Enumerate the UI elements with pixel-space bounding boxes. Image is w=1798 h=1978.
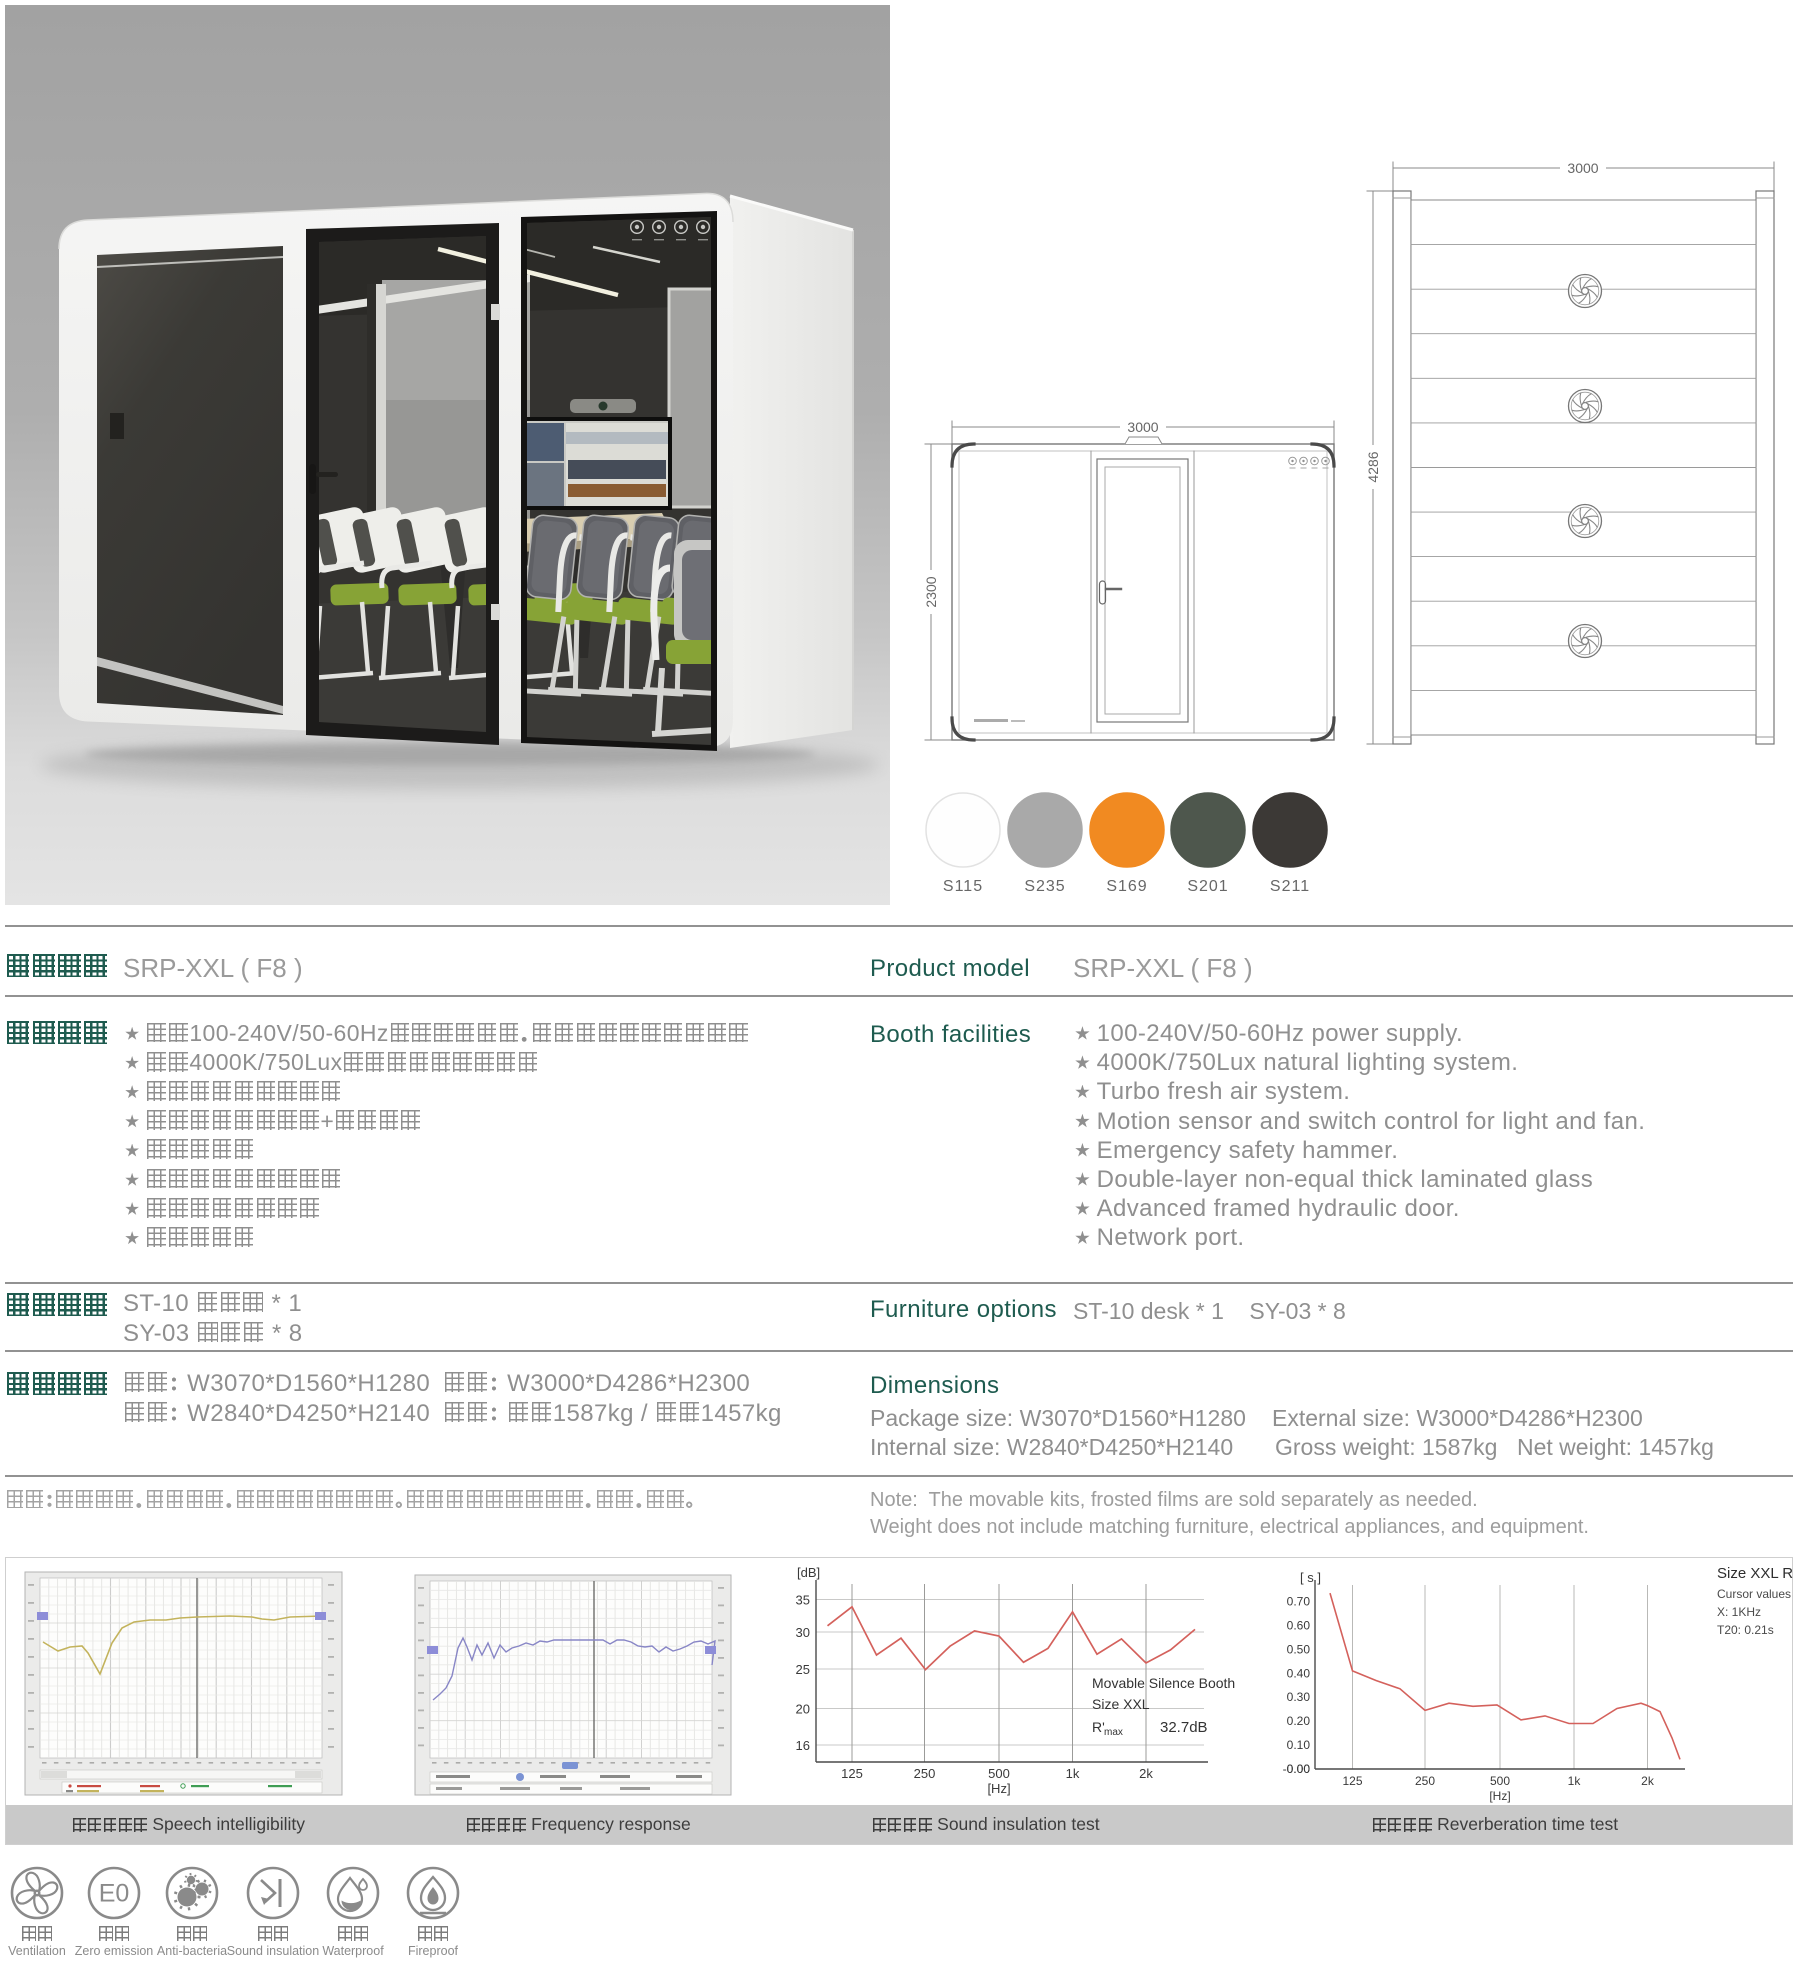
svg-text:125: 125 (1342, 1774, 1362, 1788)
svg-text:Size XXL RT: Size XXL RT (1717, 1565, 1793, 1582)
svg-text:Cursor values: Cursor values (1717, 1587, 1791, 1601)
svg-text:S115: S115 (943, 878, 983, 895)
svg-text:S211: S211 (1270, 878, 1310, 895)
svg-text:0.60: 0.60 (1287, 1618, 1311, 1632)
svg-text:32.7dB: 32.7dB (1160, 1719, 1208, 1736)
svg-text:250: 250 (1415, 1774, 1435, 1788)
svg-text:0.50: 0.50 (1287, 1642, 1311, 1656)
svg-text:R': R' (1092, 1719, 1105, 1735)
svg-text:30: 30 (796, 1625, 810, 1640)
svg-text:[dB]: [dB] (797, 1565, 820, 1580)
svg-text:16: 16 (796, 1738, 810, 1753)
svg-text:25: 25 (796, 1662, 810, 1677)
svg-text:0.00: 0.00 (1287, 1762, 1311, 1776)
svg-text:125: 125 (841, 1766, 863, 1781)
svg-text:250: 250 (914, 1766, 936, 1781)
svg-text:S235: S235 (1024, 878, 1065, 895)
svg-text:0.40: 0.40 (1287, 1666, 1311, 1680)
svg-text:[Hz]: [Hz] (1489, 1789, 1510, 1803)
svg-text:S201: S201 (1187, 878, 1228, 895)
svg-text:Size XXL: Size XXL (1092, 1696, 1150, 1712)
svg-text:35: 35 (796, 1593, 810, 1608)
svg-text:0.20: 0.20 (1287, 1714, 1311, 1728)
svg-text:E0: E0 (99, 1880, 130, 1908)
svg-text:0.70: 0.70 (1287, 1595, 1311, 1609)
svg-text:3000: 3000 (1127, 419, 1158, 435)
svg-text:3000: 3000 (1567, 160, 1598, 176)
svg-text:500: 500 (1490, 1774, 1510, 1788)
svg-text:0.30: 0.30 (1287, 1690, 1311, 1704)
svg-text:2k: 2k (1139, 1766, 1153, 1781)
svg-text:2300: 2300 (923, 576, 939, 607)
svg-text:1k: 1k (1066, 1766, 1080, 1781)
svg-text:Movable Silence Booth: Movable Silence Booth (1092, 1675, 1235, 1691)
svg-text:500: 500 (988, 1766, 1010, 1781)
svg-text:4286: 4286 (1365, 451, 1381, 482)
svg-text:20: 20 (796, 1702, 810, 1717)
svg-text:[ s ]: [ s ] (1300, 1570, 1321, 1585)
svg-text:[Hz]: [Hz] (987, 1781, 1010, 1796)
svg-text:max: max (1104, 1727, 1123, 1738)
svg-text:2k: 2k (1641, 1774, 1655, 1788)
svg-text:S169: S169 (1106, 878, 1147, 895)
svg-text:0.10: 0.10 (1287, 1738, 1311, 1752)
svg-text:1k: 1k (1568, 1774, 1582, 1788)
svg-text:T20: 0.21s: T20: 0.21s (1717, 1623, 1774, 1637)
svg-text:X: 1KHz: X: 1KHz (1717, 1605, 1761, 1619)
